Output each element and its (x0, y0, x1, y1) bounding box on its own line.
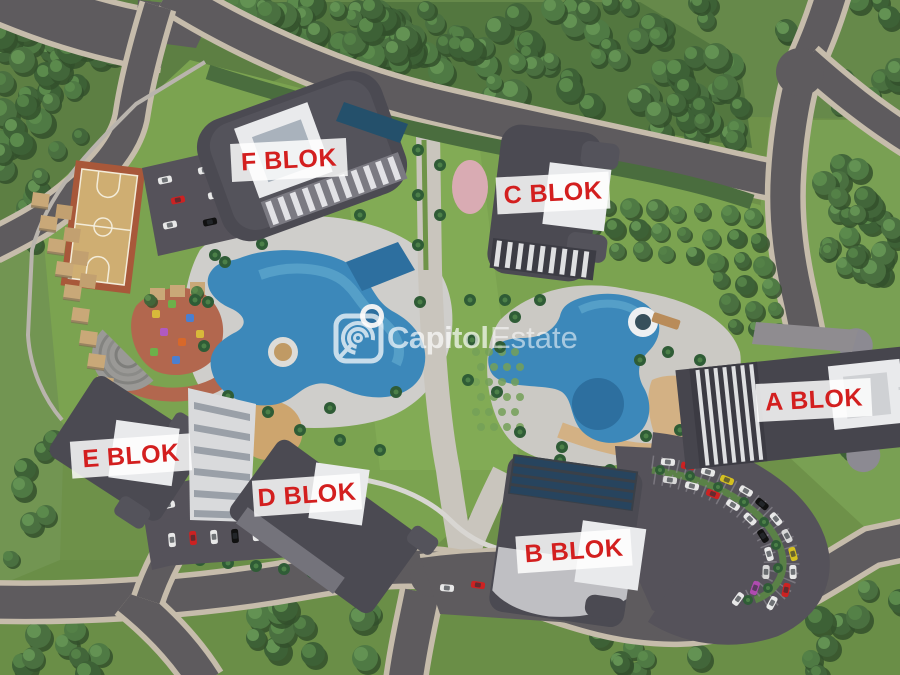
svg-text:A BLOK: A BLOK (764, 383, 863, 416)
svg-text:Estate: Estate (490, 320, 578, 355)
svg-text:Capitol: Capitol (387, 320, 489, 355)
svg-text:C BLOK: C BLOK (503, 176, 603, 209)
svg-text:F BLOK: F BLOK (240, 144, 337, 177)
